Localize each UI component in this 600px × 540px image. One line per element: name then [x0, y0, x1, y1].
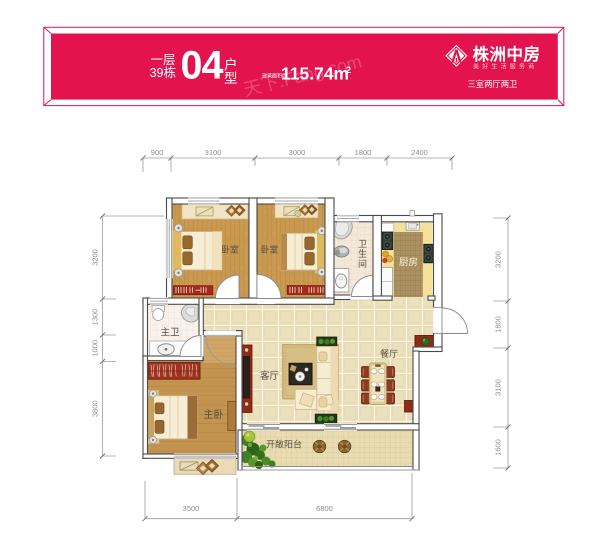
svg-text:900: 900	[151, 148, 164, 157]
svg-text:株洲中房: 株洲中房	[473, 44, 541, 64]
svg-text:3800: 3800	[91, 400, 100, 417]
svg-text:2400: 2400	[411, 148, 428, 157]
svg-text:04: 04	[181, 44, 224, 88]
svg-text:3200: 3200	[91, 249, 100, 266]
svg-text:一层: 一层	[150, 53, 175, 67]
svg-text:生: 生	[358, 248, 367, 259]
svg-text:卧室: 卧室	[221, 244, 239, 255]
svg-text:39栋: 39栋	[150, 65, 176, 80]
svg-text:3100: 3100	[494, 379, 503, 396]
svg-text:3100: 3100	[205, 148, 222, 157]
svg-text:美好生活服务商: 美好生活服务商	[473, 63, 537, 71]
svg-text:1800: 1800	[355, 148, 372, 157]
svg-text:三室两厅两卫: 三室两厅两卫	[468, 79, 518, 89]
svg-text:主卧: 主卧	[204, 408, 224, 421]
svg-text:3500: 3500	[183, 504, 200, 513]
svg-text:卫: 卫	[358, 239, 367, 249]
svg-text:餐厅: 餐厅	[380, 348, 398, 359]
svg-text:6800: 6800	[316, 504, 333, 513]
svg-text:厨房: 厨房	[399, 257, 418, 269]
svg-text:1800: 1800	[494, 316, 503, 333]
svg-text:卧室: 卧室	[261, 244, 279, 255]
svg-text:型: 型	[224, 71, 238, 86]
svg-text:3000: 3000	[289, 148, 306, 157]
svg-text:客厅: 客厅	[260, 370, 280, 382]
svg-text:1300: 1300	[91, 309, 100, 326]
svg-text:主卫: 主卫	[160, 327, 180, 339]
svg-text:间: 间	[358, 258, 367, 269]
svg-text:1600: 1600	[494, 439, 503, 456]
svg-text:3200: 3200	[494, 251, 503, 268]
svg-text:1000: 1000	[91, 340, 100, 357]
svg-text:开敞阳台: 开敞阳台	[266, 439, 302, 450]
